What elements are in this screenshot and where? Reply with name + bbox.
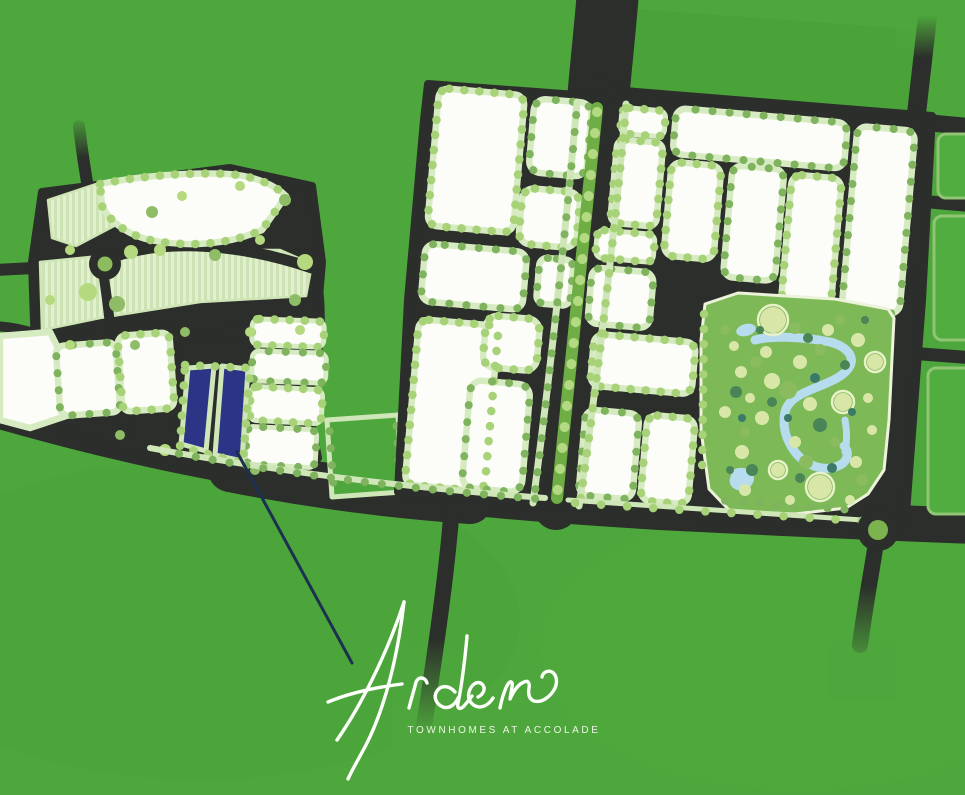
masterplan-map: Arden TOWNHOMES AT ACCOLADE xyxy=(0,0,965,795)
site-parcel-west xyxy=(181,366,214,451)
site-map-page: Arden TOWNHOMES AT ACCOLADE xyxy=(0,0,965,795)
block xyxy=(664,162,722,260)
block xyxy=(56,342,121,416)
roundabout-west xyxy=(89,248,121,280)
block xyxy=(117,332,174,411)
site-parcel-east xyxy=(215,366,248,461)
block xyxy=(427,88,525,233)
block xyxy=(245,426,317,468)
block xyxy=(587,267,654,328)
block xyxy=(528,98,592,177)
community-park xyxy=(701,293,894,514)
roundabout-east xyxy=(857,509,899,551)
logo-tagline: TOWNHOMES AT ACCOLADE xyxy=(408,725,601,736)
